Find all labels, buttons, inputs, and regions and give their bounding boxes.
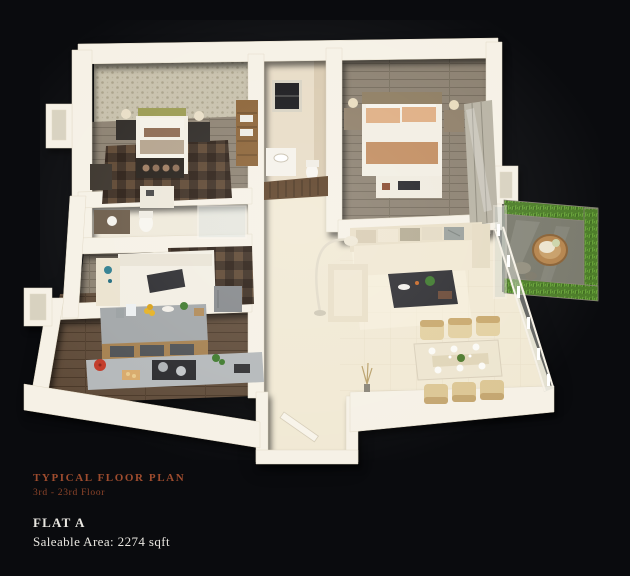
bedroom3-chaise [96,258,120,306]
dresser-decor [146,190,154,196]
bed2-pillow [402,107,436,122]
teal-bottle [108,279,112,283]
lamp [449,100,459,110]
master-blanket [140,140,184,156]
lamp-base [314,310,326,316]
pot [158,362,168,372]
bed2-blanket [366,142,438,164]
sofa-cushion [356,230,376,243]
books [438,291,452,299]
area-label: Saleable Area: 2274 sqft [33,534,185,550]
basket [194,308,204,316]
nightstand [344,108,362,130]
bed2-headboard [362,92,442,106]
floor-range-label: 3rd - 23rd Floor [33,488,185,500]
wall-foyer-bottom [256,450,358,464]
flat-label: FLAT A [33,515,185,531]
plate [429,348,436,355]
basin [274,154,288,162]
bench-pillow [153,165,160,172]
coffee-machine [126,304,136,316]
nightstand [188,122,210,142]
ensuite-basin [107,216,117,226]
wall-bath-bed2 [326,48,342,232]
balustrade-post [537,348,540,360]
pot [176,366,186,376]
table-plant [425,276,435,286]
bed2-pillow [366,108,400,123]
tv [398,181,420,190]
plate [479,363,486,370]
lamp [348,98,358,108]
chaise-cushion [334,270,362,316]
plate [451,346,458,353]
plate [457,365,464,372]
balustrade-post [497,224,500,236]
lamp-shade [344,236,358,246]
fruit [149,310,155,316]
sofa-seat [354,240,472,276]
island-drawer [170,344,194,355]
balustrade-post [547,374,550,386]
teal-pillow [104,266,112,274]
greens [219,359,225,365]
shower [198,206,246,238]
jar [116,308,124,318]
nightstand [444,110,464,132]
sofa-cushion [400,228,420,241]
ac-ledge-left-inner [52,110,66,140]
plate [435,367,442,374]
master-accent-pillows [144,128,180,137]
hob [152,360,196,380]
sofa-armrest [472,224,490,268]
vase [364,384,370,392]
toilet-tank [306,160,319,167]
sofa-cushion [422,227,442,240]
towels [240,129,253,136]
centerpiece [457,354,465,362]
caption-block: TYPICAL FLOOR PLAN 3rd - 23rd Floor FLAT… [33,472,185,550]
greens [212,354,220,362]
dining-area [414,316,504,404]
bench-pillow [163,165,170,172]
nightstand [116,120,136,140]
red-pot-lid [99,364,102,367]
chair-pillow [552,239,560,247]
floor-plan-image: TYPICAL FLOOR PLAN 3rd - 23rd Floor FLAT… [0,0,630,576]
plate [473,344,480,351]
stone-stool [525,272,537,280]
ledge-kitchen-left-inner [30,294,46,320]
island-drawer [110,346,134,357]
plan-type-label: TYPICAL FLOOR PLAN [33,472,185,486]
island-drawer [140,345,164,356]
balustrade-post [527,317,530,329]
island-plant [180,302,188,310]
ac-ledge-right-inner [500,172,512,198]
ensuite-toilet-tank [139,211,153,218]
bed3-pillows [120,254,212,266]
bowl [162,306,174,312]
bench-pillow [143,165,150,172]
towels [240,115,253,122]
credenza-decor [382,183,390,190]
balustrade-post [507,255,510,267]
balustrade-post [517,286,520,298]
bench-pillow [173,165,180,172]
cutting-board [122,370,140,380]
master-dark-cabinet [90,164,112,190]
fruit [147,304,153,310]
coffee-table [388,270,458,308]
lamp [121,109,131,119]
decor-dot [415,281,419,285]
lamp [194,111,204,121]
tray [234,364,250,373]
sofa-cushion [378,229,398,242]
master-dresser [140,186,174,208]
dish [398,284,410,290]
